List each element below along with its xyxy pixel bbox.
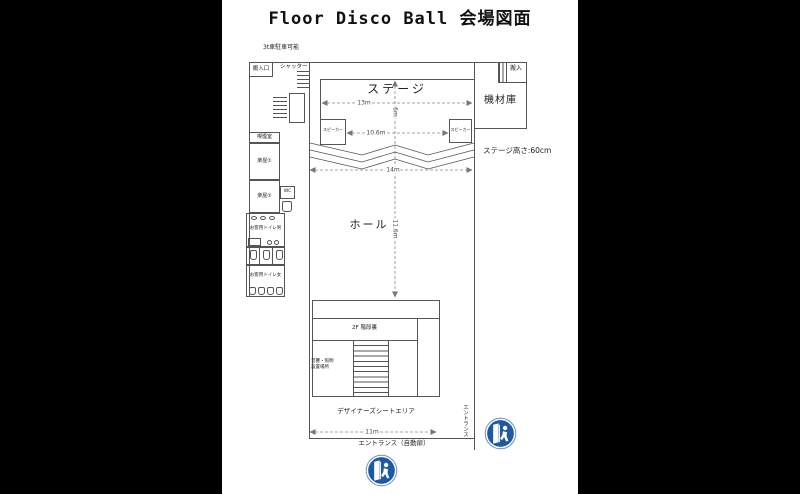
stall-divider: [259, 247, 260, 265]
stair-column-line: [388, 340, 389, 397]
stage-label: ステージ: [320, 83, 474, 96]
dim-hall-depth: 11.6m: [392, 218, 399, 239]
loading-entrance-label: 搬入口: [249, 66, 273, 72]
screenshot-root: { "title": "Floor Disco Ball 会場図面", "not…: [0, 0, 800, 494]
wall-hall-left: [309, 62, 310, 438]
stage-back-line: [320, 79, 474, 80]
dim-speaker-span: 10.6m: [365, 130, 386, 137]
toilet-icon: [276, 287, 283, 295]
loading-platform: [289, 93, 305, 123]
stall-divider: [272, 247, 273, 265]
hall-label: ホール: [309, 219, 429, 231]
shutter-hatch-icon: [297, 71, 310, 91]
dim-designer-width: 11m: [364, 429, 379, 436]
sink-icon: [251, 216, 257, 220]
toilet-women-label: お客用トイレ女: [246, 274, 285, 279]
toilet-icon: [263, 250, 270, 260]
toilet-men-label: お客用トイレ男: [246, 227, 285, 232]
toilet-icon: [258, 287, 265, 295]
designer-seat-area-label: デザイナーズシートエリア: [312, 408, 440, 415]
entrance-door-icon: [484, 417, 517, 450]
wc-label: WC: [280, 190, 295, 195]
dim-stage-width: 13m: [356, 100, 371, 107]
toilet-icon: [250, 250, 257, 260]
stairs-2f-inner-line: [312, 318, 440, 319]
sound-light-label-line2: 設置場所: [311, 366, 329, 371]
toilet-icon: [276, 250, 283, 260]
entrance-auto-door-label: エントランス（自動扉）: [334, 440, 454, 447]
urinal-icon: [274, 240, 279, 245]
floorplan-paper: Floor Disco Ball 会場図面 3t車駐車可能 搬入口 シャッター: [222, 0, 578, 494]
speaker-left-label: スピーカー: [320, 128, 346, 132]
stairs-icon: [273, 97, 287, 121]
toilet-icon: [249, 287, 256, 295]
smoking-room-label: 喫煙室: [249, 135, 280, 141]
toilet-icon: [282, 201, 292, 212]
stair-column-line: [417, 318, 418, 397]
dressing-room-1-label: 楽屋①: [249, 159, 280, 165]
speaker-right-label: スピーカー: [449, 128, 472, 132]
loading-label: 搬入: [510, 66, 522, 73]
sink-icon: [269, 216, 275, 220]
stairs-2f-label: 2F 階段裏: [312, 325, 417, 331]
entrance-side-label: エントランス: [462, 404, 468, 450]
loading-bay-shutter-icon: [499, 63, 508, 82]
dim-hall-width: 14m: [385, 167, 400, 174]
dim-stage-depth: 6m: [392, 106, 399, 118]
urinal-icon: [267, 240, 272, 245]
sink-icon: [260, 216, 266, 220]
equipment-room-label: 機材庫: [474, 95, 527, 106]
urinal-icon: [248, 238, 261, 246]
stage-height-note: ステージ高さ:60cm: [483, 147, 551, 155]
toilet-icon: [267, 287, 274, 295]
shutter-label: シャッター: [280, 64, 308, 70]
dressing-room-2-label: 楽屋②: [249, 194, 280, 200]
entrance-door-icon: [365, 454, 398, 487]
stair-treads-icon: [353, 340, 388, 397]
